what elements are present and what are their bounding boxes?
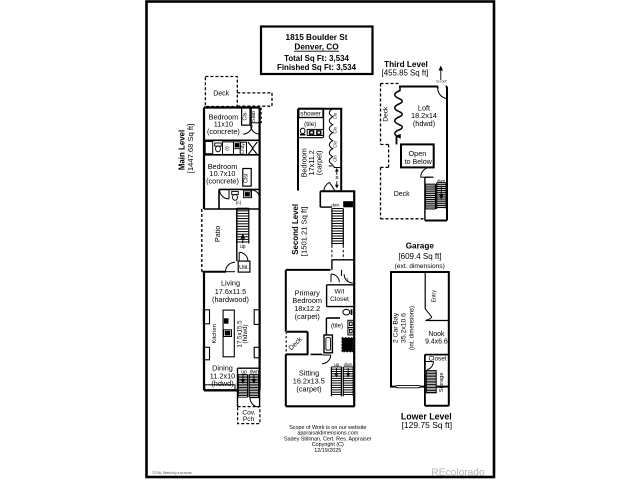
svg-text:Deck: Deck [213,90,229,97]
svg-text:up: up [334,362,340,367]
svg-text:Entry: Entry [432,290,438,303]
svg-text:Open: Open [408,149,426,158]
svg-text:Closet: Closet [330,296,349,303]
svg-text:12/19/2025: 12/19/2025 [314,448,341,454]
svg-text:[455.85 Sq ft]: [455.85 Sq ft] [382,68,429,77]
svg-text:L: L [347,278,350,284]
svg-text:(tile): (tile) [304,121,316,128]
svg-text:Slab: Slab [251,111,257,122]
svg-text:Patio: Patio [213,226,222,242]
svg-text:Clo: Clo [333,141,338,148]
svg-text:Storage: Storage [439,373,445,393]
svg-text:2 Car Bay: 2 Car Bay [393,312,400,343]
svg-text:Cls: Cls [242,112,248,120]
svg-text:1815 Boulder St: 1815 Boulder St [286,33,348,42]
svg-text:(hdwd): (hdwd) [413,119,435,128]
svg-text:B: B [336,175,339,180]
svg-text:Denver, CO: Denver, CO [294,43,339,52]
svg-text:dwn: dwn [344,362,353,367]
svg-text:(hdwd): (hdwd) [242,325,249,344]
svg-text:dwn: dwn [331,203,340,208]
svg-text:Clst: Clst [244,173,250,183]
svg-text:9.4x6.6: 9.4x6.6 [425,338,448,345]
svg-text:[129.75 Sq ft]: [129.75 Sq ft] [402,420,453,430]
svg-text:Kitchen: Kitchen [212,324,218,343]
svg-text:Finished Sq Ft: 3,534: Finished Sq Ft: 3,534 [277,63,357,72]
svg-text:Nook: Nook [428,331,445,338]
svg-text:Total Sq Ft: 3,534: Total Sq Ft: 3,534 [284,54,349,63]
svg-text:(carpet): (carpet) [315,150,324,175]
svg-text:(concrete): (concrete) [206,176,239,185]
svg-text:(int. dimensions): (int. dimensions) [410,306,416,350]
svg-text:to Below: to Below [405,158,433,166]
svg-text:up: up [240,244,246,250]
svg-text:Util.: Util. [239,265,249,271]
svg-text:to roof: to roof [437,79,447,83]
svg-text:[1447.68 Sq ft]: [1447.68 Sq ft] [186,124,195,173]
svg-text:Pch: Pch [243,416,255,423]
svg-text:35.2x10.6: 35.2x10.6 [401,313,408,343]
svg-text:REcolorado: REcolorado [431,468,485,479]
svg-text:Lndy: Lndy [240,143,246,154]
svg-text:(c): (c) [236,200,242,206]
svg-text:Clo: Clo [333,155,338,162]
svg-text:(carpet): (carpet) [295,312,320,321]
svg-text:(tile): (tile) [331,323,343,330]
svg-text:[1501.21 Sq ft]: [1501.21 Sq ft] [300,207,309,256]
svg-text:Deck: Deck [382,106,389,122]
svg-text:(concrete): (concrete) [207,127,240,136]
svg-text:TOTAL Sketch by a la mode: TOTAL Sketch by a la mode [152,471,192,475]
svg-text:W/I: W/I [335,289,345,296]
svg-text:Deck: Deck [394,191,410,198]
svg-text:(hardwood): (hardwood) [212,295,249,304]
svg-text:Clo: Clo [333,112,338,119]
svg-text:(carpet): (carpet) [296,385,321,394]
svg-text:(ext. dimensions): (ext. dimensions) [395,263,445,270]
svg-text:Clo: Clo [333,126,338,133]
svg-text:(hdwd): (hdwd) [211,379,233,388]
svg-text:[609.4 Sq ft]: [609.4 Sq ft] [398,252,441,261]
svg-text:(t): (t) [224,146,230,151]
svg-text:shower: shower [300,111,321,118]
svg-text:Garage: Garage [406,242,435,251]
